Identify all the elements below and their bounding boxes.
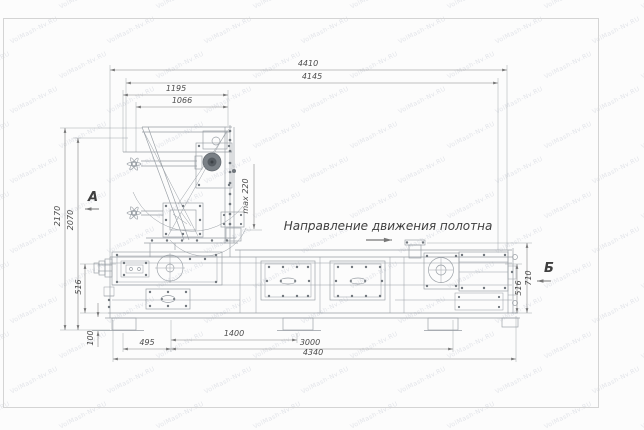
dim-1066: 1066: [172, 96, 192, 105]
dim-4340: 4340: [303, 348, 323, 357]
dim-2170: 2170: [53, 206, 62, 226]
dim-1400: 1400: [224, 329, 244, 338]
handwheel-upper: [127, 157, 141, 171]
mixer-unit: [123, 125, 246, 257]
dim-710: 710: [524, 270, 533, 285]
dim-4145: 4145: [302, 72, 322, 81]
drawing-page: VolMash-Nv.RUVolMash-Nv.RUVolMash-Nv.RUV…: [0, 0, 644, 430]
dim-1195: 1195: [166, 84, 186, 93]
dim-100: 100: [86, 330, 95, 345]
direction-of-web-label: Направление движения полотна: [284, 219, 493, 233]
conveyor-unit: [92, 240, 520, 331]
dim-3000: 3000: [300, 338, 320, 347]
dim-4410: 4410: [298, 59, 318, 68]
dim-516-right: 516: [514, 280, 523, 295]
view-label-a: А: [87, 190, 98, 205]
extension-lines: [60, 65, 532, 362]
dim-495: 495: [139, 338, 154, 347]
dim-516-left: 516: [74, 279, 83, 294]
handwheel-lower: [127, 206, 141, 220]
technical-drawing: 4410 4145 1195 1066 2170 2070 516 100 71…: [0, 0, 644, 430]
dim-2070: 2070: [66, 210, 75, 230]
view-label-b: Б: [544, 261, 554, 276]
dim-max-220: max 220: [241, 178, 250, 213]
